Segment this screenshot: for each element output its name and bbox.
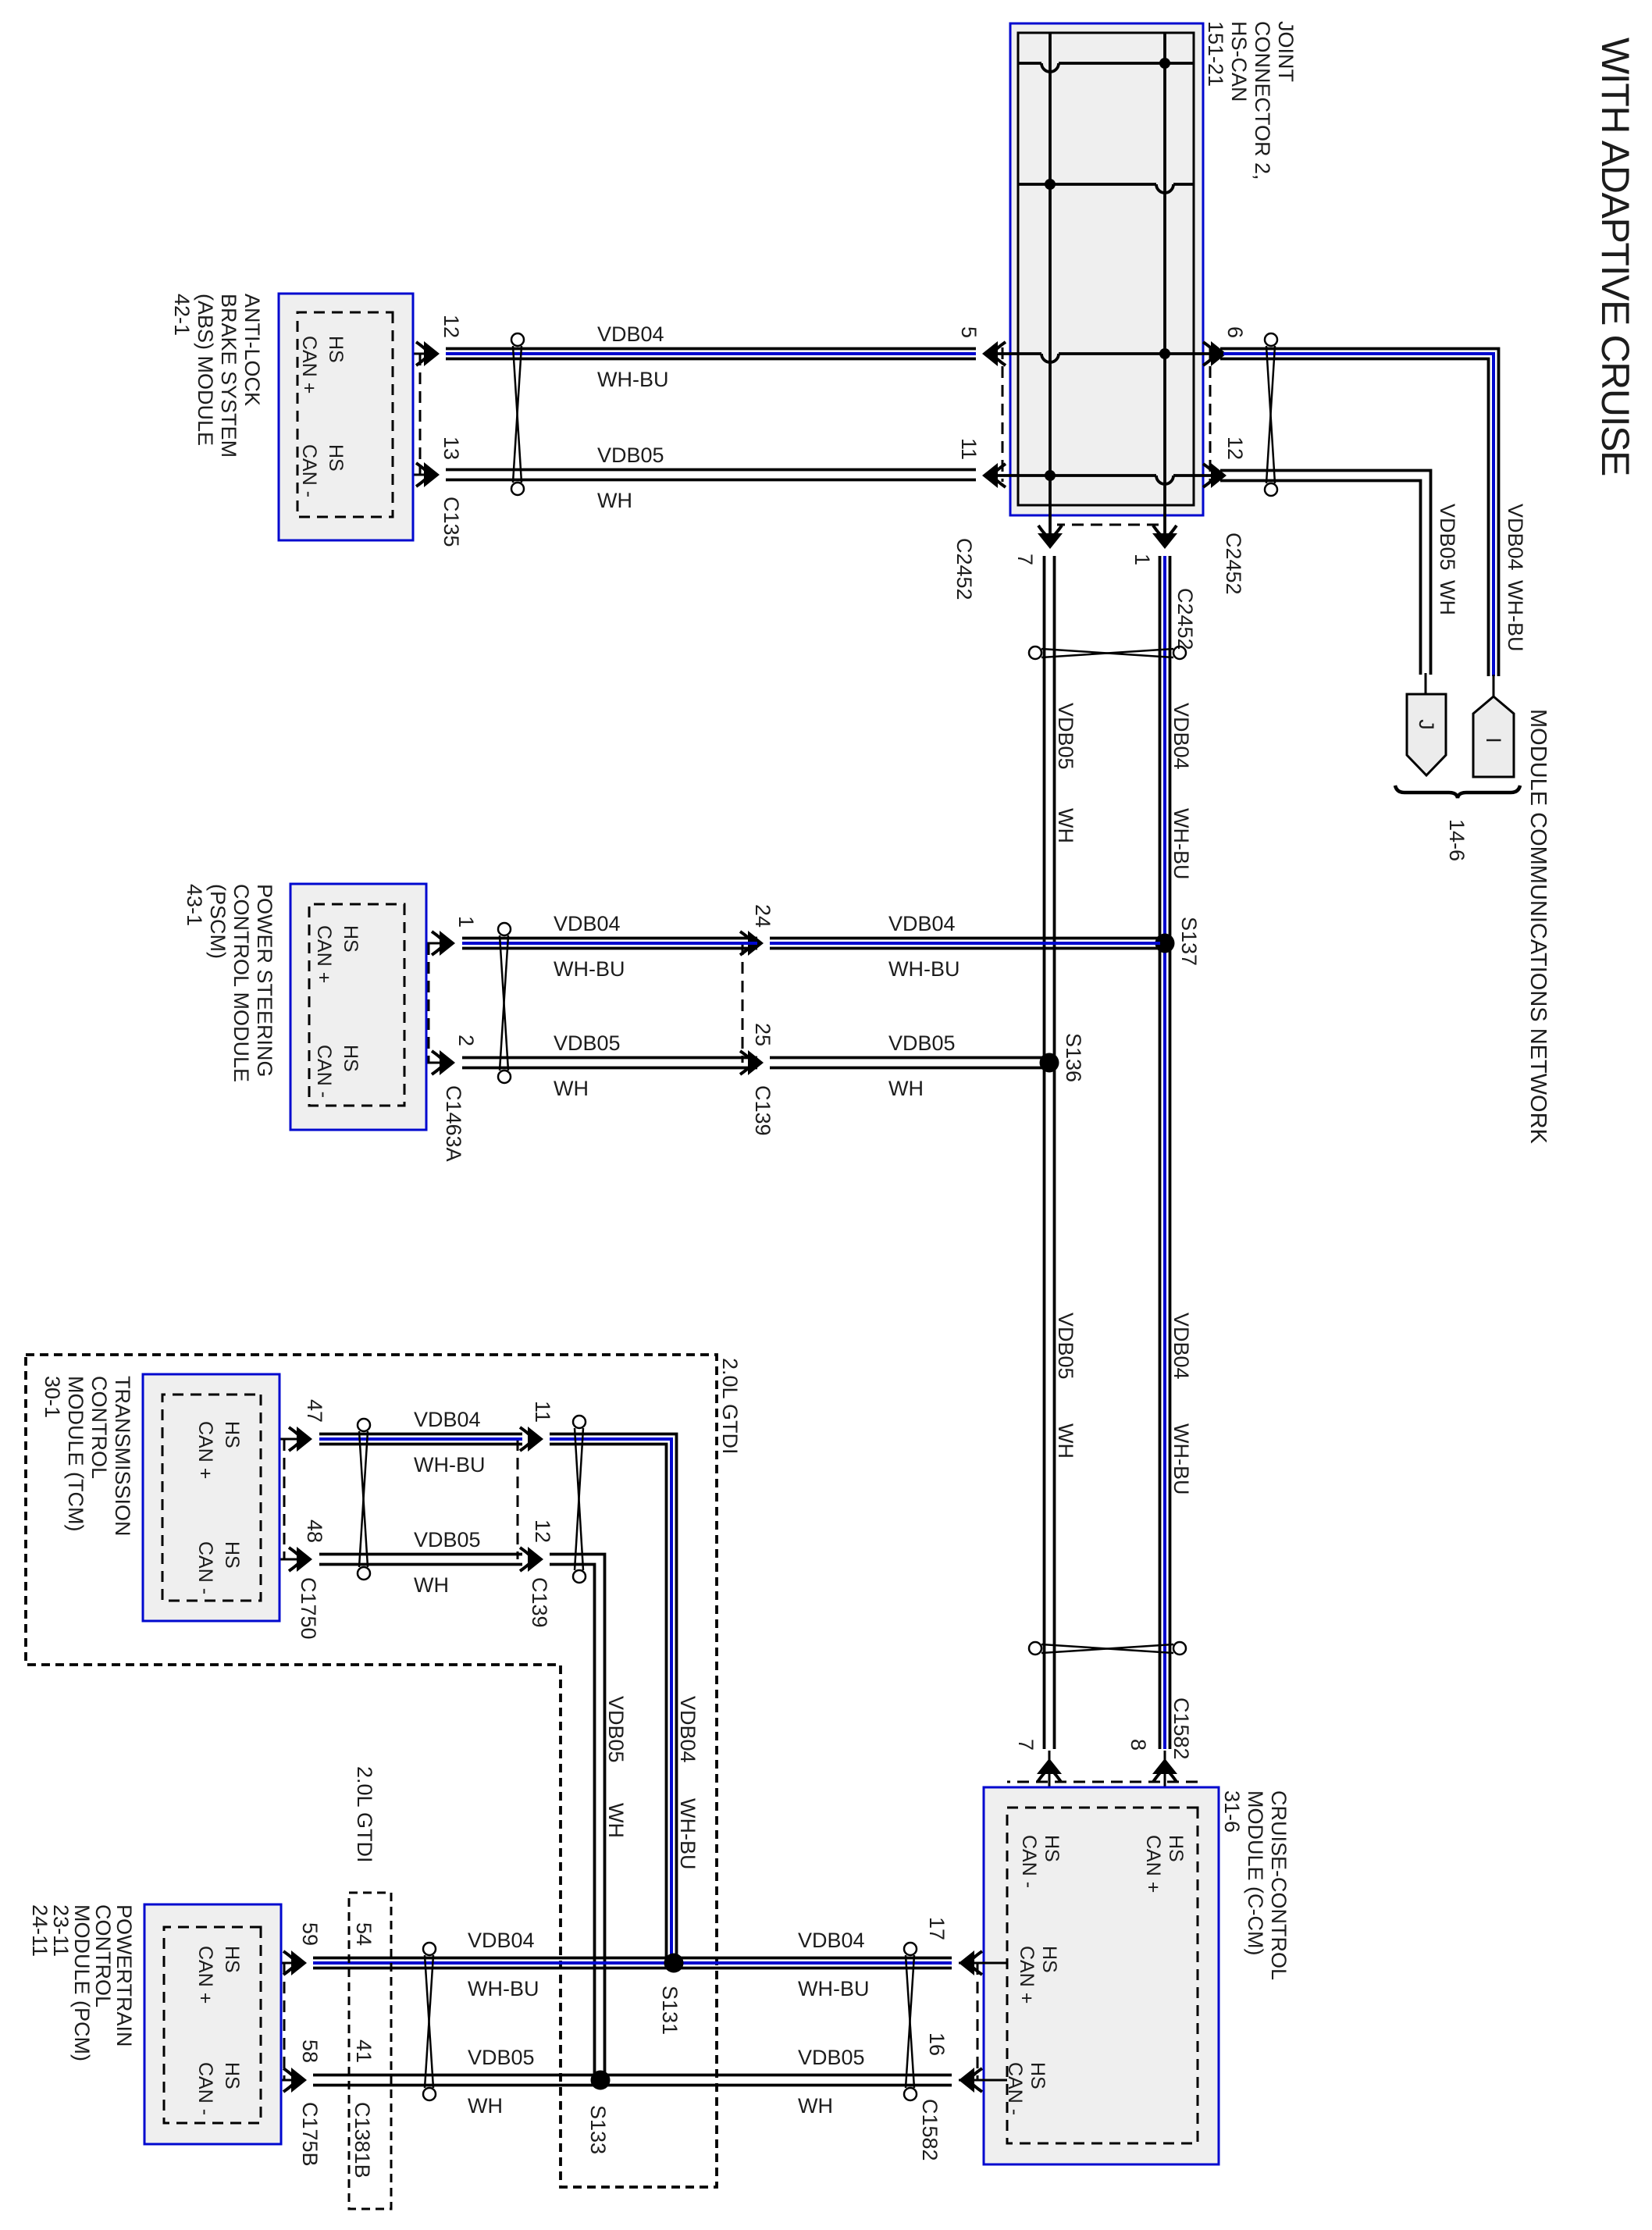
svg-text:7: 7 [1013,554,1037,565]
svg-text:S137: S137 [1177,917,1201,966]
svg-text:CONTROL: CONTROL [91,1904,115,2007]
svg-text:24-11: 24-11 [28,1904,52,1957]
svg-text:CAN -: CAN - [1018,1835,1040,1888]
svg-text:C1463A: C1463A [442,1085,465,1162]
svg-text:5: 5 [957,326,981,338]
svg-text:17: 17 [925,1917,949,1940]
svg-text:CONNECTOR 2,: CONNECTOR 2, [1251,21,1274,180]
svg-text:HS: HS [340,925,361,953]
svg-text:59: 59 [298,1922,322,1946]
svg-text:(PSCM): (PSCM) [206,884,230,959]
svg-text:C2452: C2452 [1173,588,1197,650]
svg-text:HS: HS [1041,1835,1063,1862]
svg-text:HS: HS [221,1946,243,1973]
svg-text:BRAKE SYSTEM: BRAKE SYSTEM [217,294,240,458]
svg-text:VDB05: VDB05 [1436,504,1459,571]
svg-text:2.0L GTDI: 2.0L GTDI [718,1358,742,1455]
svg-text:CAN +: CAN + [194,1421,216,1479]
svg-text:25: 25 [751,1023,774,1046]
svg-text:23-11: 23-11 [49,1904,73,1957]
svg-text:MODULE (PCM): MODULE (PCM) [70,1904,94,2061]
svg-text:WH: WH [1054,808,1077,843]
svg-text:HS: HS [221,1421,243,1448]
svg-text:47: 47 [303,1399,326,1423]
svg-text:VDB05: VDB05 [1054,703,1077,770]
svg-text:HS: HS [325,336,347,363]
svg-text:POWER STEERING: POWER STEERING [253,884,276,1078]
svg-text:WH: WH [414,1573,449,1597]
svg-text:C2452: C2452 [1222,533,1245,595]
svg-text:C1582: C1582 [1170,1697,1193,1760]
svg-text:CAN +: CAN + [194,1946,216,2004]
svg-text:VDB04: VDB04 [798,1929,865,1952]
svg-text:12: 12 [440,315,463,338]
svg-text:CAN -: CAN - [1004,2062,1026,2115]
svg-text:WH: WH [888,1077,924,1100]
svg-text:WH-BU: WH-BU [1170,808,1193,879]
svg-text:HS: HS [340,1045,361,1072]
svg-text:58: 58 [298,2039,322,2063]
svg-text:1: 1 [454,916,478,928]
svg-text:WH-BU: WH-BU [888,957,960,981]
svg-text:C135: C135 [440,497,463,547]
svg-text:14-6: 14-6 [1445,819,1469,861]
svg-text:WITH ADAPTIVE CRUISE: WITH ADAPTIVE CRUISE [1593,37,1637,476]
svg-text:WH: WH [1054,1423,1077,1459]
svg-text:WH-BU: WH-BU [1170,1423,1193,1494]
svg-text:POWERTRAIN: POWERTRAIN [112,1904,136,2047]
svg-text:CRUISE-CONTROL: CRUISE-CONTROL [1267,1790,1291,1980]
svg-text:6: 6 [1223,326,1247,338]
svg-text:MODULE (C-CM): MODULE (C-CM) [1244,1790,1267,1955]
svg-text:11: 11 [957,438,981,460]
svg-text:42-1: 42-1 [170,294,194,336]
svg-text:CONTROL MODULE: CONTROL MODULE [230,884,253,1082]
svg-text:41: 41 [352,2039,376,2063]
svg-text:VDB05: VDB05 [468,2046,535,2069]
svg-text:VDB05: VDB05 [1054,1313,1077,1380]
svg-text:43-1: 43-1 [183,884,206,926]
svg-text:JOINT: JOINT [1274,21,1298,82]
svg-text:VDB05: VDB05 [554,1031,621,1055]
svg-text:VDB05: VDB05 [604,1696,628,1763]
svg-text:VDB04: VDB04 [1504,504,1527,571]
svg-text:HS: HS [1027,2062,1049,2089]
svg-text:2: 2 [454,1035,478,1046]
svg-text:VDB05: VDB05 [888,1031,956,1055]
svg-text:WH: WH [554,1077,589,1100]
svg-text:31-6: 31-6 [1220,1790,1244,1833]
svg-text:C139: C139 [528,1577,551,1628]
svg-text:CAN +: CAN + [1142,1835,1164,1893]
svg-text:WH: WH [798,2094,833,2118]
svg-text:VDB04: VDB04 [888,912,956,935]
svg-text:C2452: C2452 [952,538,976,600]
svg-text:WH: WH [604,1803,628,1838]
svg-text:VDB04: VDB04 [1170,1313,1193,1380]
svg-text:24: 24 [751,904,774,928]
svg-text:VDB04: VDB04 [468,1929,535,1952]
svg-text:HS: HS [221,2062,243,2089]
svg-text:VDB04: VDB04 [597,322,664,346]
svg-text:S133: S133 [586,2105,610,2154]
svg-text:54: 54 [352,1922,376,1946]
svg-text:8: 8 [1127,1739,1150,1751]
svg-text:C139: C139 [751,1085,774,1136]
svg-text:HS-CAN: HS-CAN [1227,21,1251,102]
svg-text:TRANSMISSION: TRANSMISSION [111,1376,134,1537]
svg-text:WH-BU: WH-BU [1504,580,1527,651]
svg-text:CONTROL: CONTROL [87,1376,111,1479]
svg-text:16: 16 [925,2032,949,2056]
svg-text:S136: S136 [1062,1033,1085,1082]
svg-text:VDB05: VDB05 [414,1528,481,1551]
svg-text:13: 13 [440,436,463,460]
svg-text:WH-BU: WH-BU [597,368,668,391]
svg-text:J: J [1415,719,1438,730]
svg-text:CAN -: CAN - [313,1045,335,1098]
svg-text:12: 12 [1223,436,1247,460]
svg-text:48: 48 [303,1519,326,1543]
svg-text:C175B: C175B [298,2102,322,2167]
svg-text:WH-BU: WH-BU [798,1977,869,2000]
svg-text:CAN +: CAN + [298,336,320,394]
svg-text:MODULE COMMUNICATIONS NETWORK: MODULE COMMUNICATIONS NETWORK [1526,709,1551,1145]
svg-text:12: 12 [531,1519,554,1543]
svg-text:VDB04: VDB04 [676,1696,700,1763]
svg-text:WH-BU: WH-BU [554,957,625,981]
svg-text:(ABS) MODULE: (ABS) MODULE [194,294,217,446]
svg-text:VDB04: VDB04 [554,912,621,935]
svg-text:ANTI-LOCK: ANTI-LOCK [240,294,264,406]
svg-text:MODULE (TCM): MODULE (TCM) [64,1376,87,1531]
svg-text:VDB04: VDB04 [414,1408,481,1431]
svg-text:WH: WH [1436,580,1459,615]
svg-text:WH: WH [468,2094,503,2118]
svg-text:30-1: 30-1 [41,1376,64,1418]
svg-text:CAN +: CAN + [1016,1946,1038,2004]
svg-text:HS: HS [1165,1835,1187,1862]
svg-text:VDB05: VDB05 [798,2046,865,2069]
svg-text:HS: HS [221,1541,243,1569]
svg-text:VDB04: VDB04 [1170,703,1193,770]
svg-text:WH-BU: WH-BU [676,1798,700,1869]
svg-text:7: 7 [1014,1739,1038,1751]
svg-text:I: I [1482,737,1505,743]
svg-text:C1381B: C1381B [351,2102,374,2178]
svg-text:CAN -: CAN - [194,2062,216,2115]
svg-text:S131: S131 [658,1986,682,2035]
svg-text:HS: HS [1038,1946,1060,1973]
svg-text:2.0L GTDI: 2.0L GTDI [353,1766,376,1863]
svg-text:1: 1 [1130,554,1154,565]
svg-text:WH-BU: WH-BU [468,1977,539,2000]
svg-text:151-21: 151-21 [1204,21,1227,87]
svg-text:11: 11 [531,1401,554,1423]
svg-text:C1582: C1582 [918,2099,942,2161]
svg-text:CAN -: CAN - [298,444,320,497]
svg-text:CAN +: CAN + [313,925,335,983]
svg-text:HS: HS [325,444,347,472]
svg-text:WH: WH [597,489,632,512]
svg-text:VDB05: VDB05 [597,444,664,467]
svg-text:C1750: C1750 [297,1577,320,1640]
svg-text:WH-BU: WH-BU [414,1453,485,1477]
svg-text:CAN -: CAN - [194,1541,216,1594]
